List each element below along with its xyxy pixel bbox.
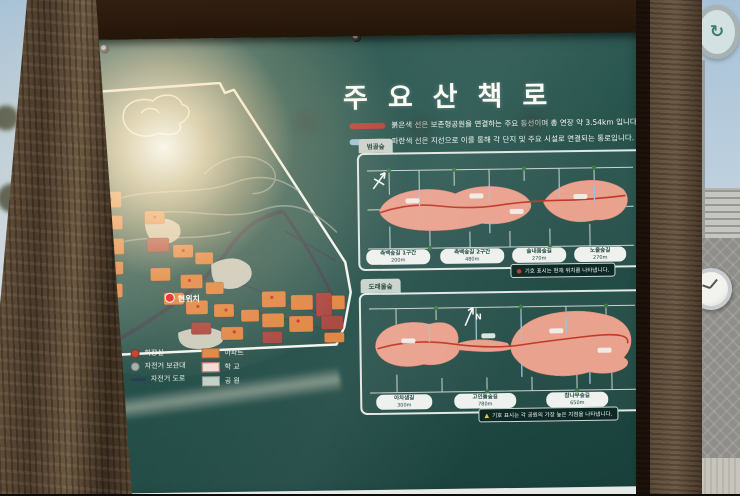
school-swatch [202,362,220,372]
trail-map-2: 도래울숲 [358,270,650,415]
sign-post-right [636,0,702,494]
legend-label: 화장실 [144,349,163,357]
sign-title: 주요산책로 [343,73,568,115]
segment-pill: 참나무숲길 650m [546,392,608,408]
trail-map-1-area: 측백숲길 1구간 200m 측백숲길 2구간 480m 솔내음숲길 270m 노… [357,149,645,271]
north-arrow: N [465,307,482,325]
red-trail-text: 붉은색 선은 보존형공원을 연결하는 주요 동선이며 총 연장 약 3.54km… [391,116,639,130]
trail-map-1: 범골숲 [357,130,649,271]
legend-label: 자전거 도로 [151,375,186,384]
current-location-dot [165,293,174,302]
segment-pill: 노을숲길 270m [574,246,626,262]
sign-panel: 현위치 화장실 자전거 보관대 자전거 도로 아파트 학 교 공 원 주요산책로… [80,20,648,494]
restroom-icon [130,349,139,358]
legend-label: 자전거 보관대 [145,362,186,371]
current-location-label: 현위치 [178,293,200,303]
trail-map-2-area: N 아차샘길 300m 고인돌숲길 780m 참나무숲길 650m [359,289,647,415]
highest-point-note: ▲ 기호 표시는 각 공원의 가장 높은 지점을 나타냅니다. [478,407,618,423]
segment-pill: 고인돌숲길 780m [454,393,516,409]
segment-pill: 아차샘길 300m [376,394,432,410]
street-lamp-pole-thin [702,60,705,250]
segment-pill: 측백숲길 1구간 200m [366,249,430,265]
trail-map-2-tab: 도래울숲 [361,279,401,294]
segment-pill: 측백숲길 2구간 480m [440,248,504,264]
district-map-legend: 화장실 자전거 보관대 자전거 도로 아파트 학 교 공 원 [130,348,244,388]
segment-pill: 솔내음숲길 270m [512,247,566,263]
svg-text:N: N [475,312,482,321]
bolt-icon [100,45,109,54]
park-swatch [202,376,220,386]
bike-rack-icon [131,362,140,371]
swirl-logo-icon: ↻ [710,22,724,42]
bike-road-icon [131,378,146,381]
trail-map-1-tab: 범골숲 [359,139,393,153]
linear-park-shape [375,310,632,378]
red-trail-swatch [349,122,385,129]
north-arrow [373,173,385,189]
legend-label: 공 원 [225,377,240,385]
legend-label: 학 교 [225,363,240,371]
apartment-swatch [201,348,219,358]
triangle-marker: ▲ [484,412,489,419]
legend-label: 아파트 [224,349,243,357]
district-map: 현위치 [83,80,363,368]
